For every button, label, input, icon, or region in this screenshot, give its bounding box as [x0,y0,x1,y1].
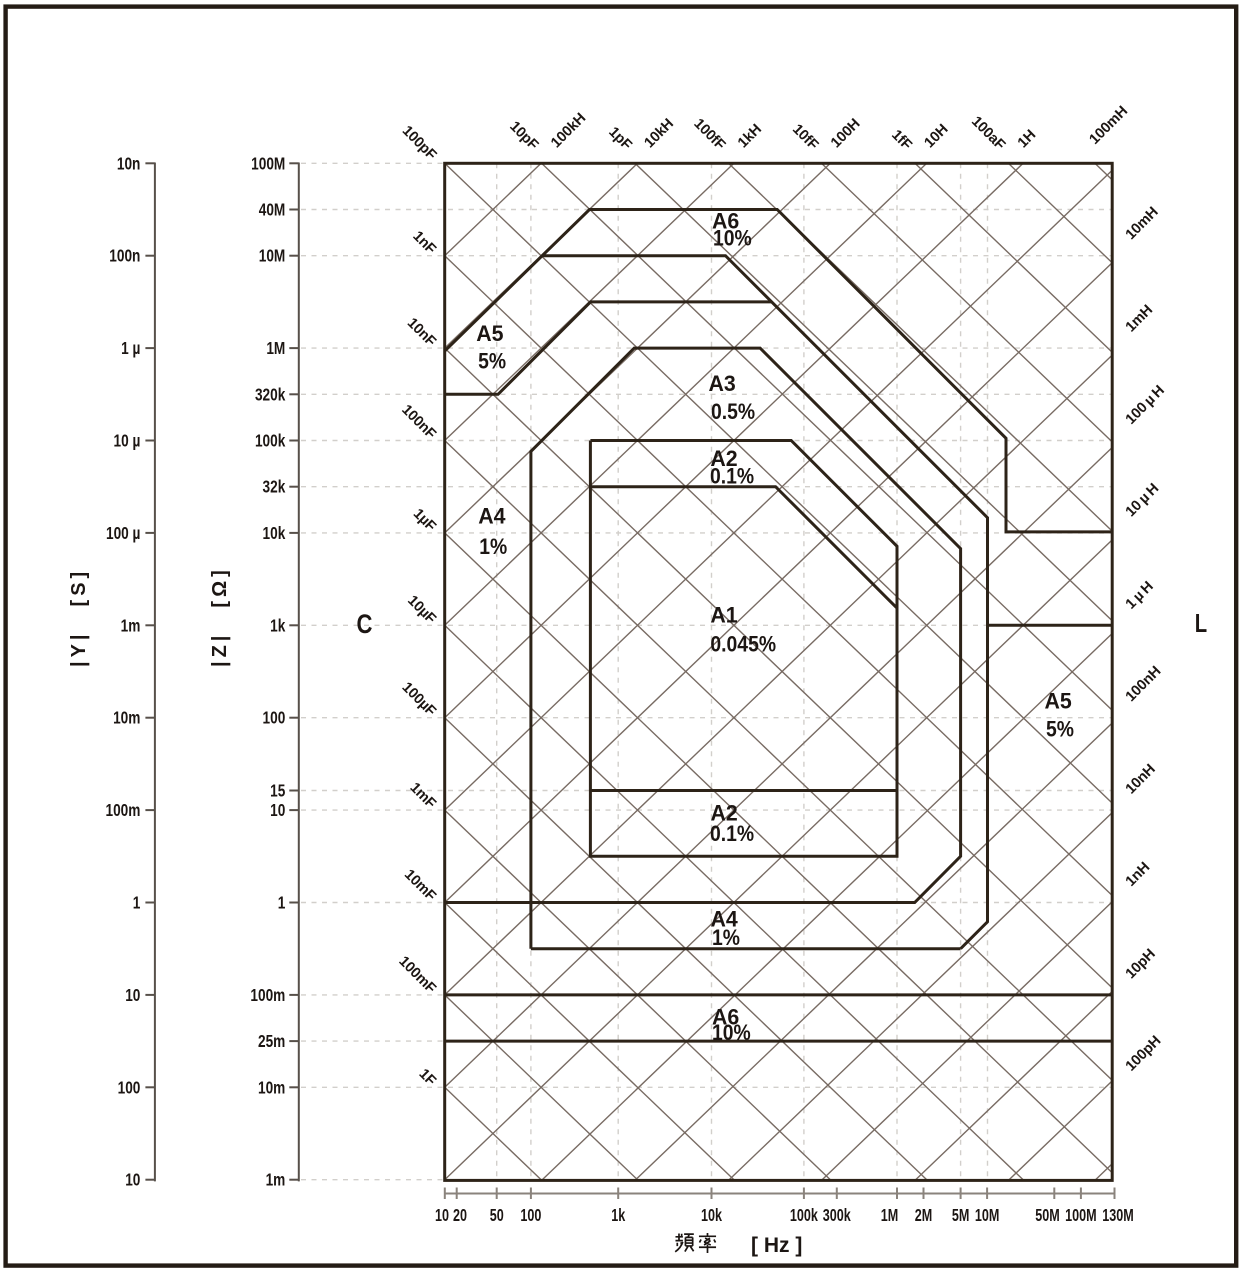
svg-text:100k: 100k [255,432,286,451]
svg-text:100: 100 [520,1206,541,1226]
svg-text:5%: 5% [478,349,506,373]
svg-text:A1: A1 [710,602,737,627]
svg-text:100m: 100m [105,802,140,821]
svg-text:A3: A3 [709,371,736,396]
svg-text:32k: 32k [263,478,286,497]
svg-text:0.045%: 0.045% [710,632,776,656]
svg-text:130M: 130M [1102,1206,1133,1226]
svg-text:10k: 10k [701,1206,722,1226]
svg-text:10: 10 [125,1171,140,1190]
svg-text:A5: A5 [476,321,503,346]
svg-text:1: 1 [133,894,141,913]
svg-text:[ Hz ]: [ Hz ] [751,1234,802,1257]
svg-text:1%: 1% [712,926,740,950]
svg-text:|Y| [S]: |Y| [S] [68,568,90,667]
svg-text:5%: 5% [1046,717,1074,741]
svg-text:1 µ: 1 µ [121,340,140,359]
svg-text:L: L [1195,609,1207,638]
svg-text:10n: 10n [117,155,141,174]
svg-text:100k: 100k [790,1206,818,1226]
svg-text:320k: 320k [255,386,286,405]
svg-text:15: 15 [270,782,285,801]
svg-text:10M: 10M [259,247,286,266]
svg-text:100: 100 [118,1079,141,1098]
svg-text:100m: 100m [250,986,285,1005]
svg-text:100: 100 [263,709,286,728]
svg-text:10: 10 [125,986,140,1005]
svg-text:10M: 10M [975,1206,999,1226]
svg-text:A4: A4 [478,503,505,528]
svg-text:A5: A5 [1045,688,1072,713]
svg-text:10%: 10% [713,226,752,250]
svg-text:1k: 1k [270,617,285,636]
svg-text:0.5%: 0.5% [711,400,755,424]
svg-text:50: 50 [490,1206,504,1226]
svg-text:10m: 10m [113,709,140,728]
svg-text:1m: 1m [121,617,141,636]
svg-text:10: 10 [270,802,285,821]
svg-text:0.1%: 0.1% [710,464,754,488]
svg-text:10: 10 [435,1206,449,1226]
svg-text:1M: 1M [266,340,285,359]
svg-text:10k: 10k [263,524,286,543]
svg-text:2M: 2M [915,1206,932,1226]
svg-text:10%: 10% [712,1021,751,1045]
svg-text:40M: 40M [259,201,286,220]
svg-text:20: 20 [453,1206,467,1226]
svg-text:100M: 100M [1065,1206,1096,1226]
svg-text:1m: 1m [266,1171,286,1190]
svg-text:1: 1 [278,894,286,913]
svg-text:100n: 100n [109,247,140,266]
svg-text:1%: 1% [479,535,507,559]
svg-text:100M: 100M [251,155,285,174]
svg-text:1k: 1k [611,1206,625,1226]
svg-text:100 µ: 100 µ [106,524,140,543]
svg-text:5M: 5M [952,1206,969,1226]
svg-text:25m: 25m [258,1033,285,1052]
svg-text:300k: 300k [823,1206,851,1226]
svg-text:10m: 10m [258,1079,285,1098]
svg-text:10 µ: 10 µ [114,432,141,451]
svg-text:|Z| [Ω]: |Z| [Ω] [209,566,231,667]
svg-text:C: C [357,610,373,640]
svg-text:1M: 1M [881,1206,898,1226]
svg-text:50M: 50M [1035,1206,1059,1226]
svg-text:0.1%: 0.1% [710,822,754,846]
